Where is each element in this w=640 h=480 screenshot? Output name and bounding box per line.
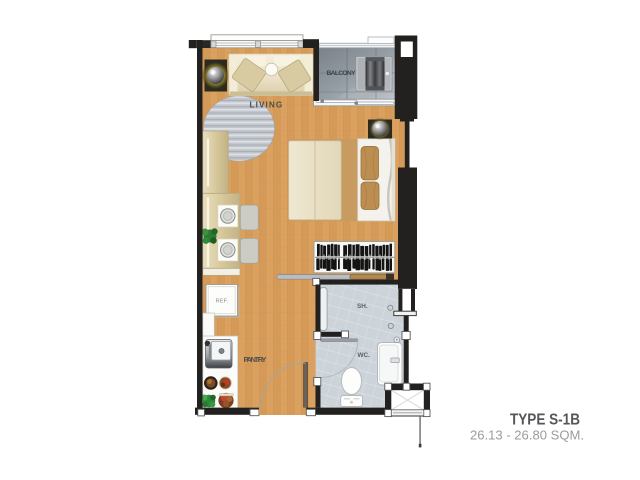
svg-text:26.13 - 26.80 SQM.: 26.13 - 26.80 SQM. <box>470 428 584 443</box>
svg-text:LIVING: LIVING <box>250 101 283 110</box>
svg-text:REF.: REF. <box>216 299 229 305</box>
svg-text:WC.: WC. <box>358 352 371 359</box>
svg-text:SH.: SH. <box>357 303 368 310</box>
svg-text:BALCONY: BALCONY <box>327 70 357 77</box>
svg-text:PANTRY: PANTRY <box>244 355 267 364</box>
svg-text:TYPE S-1B: TYPE S-1B <box>510 412 580 429</box>
